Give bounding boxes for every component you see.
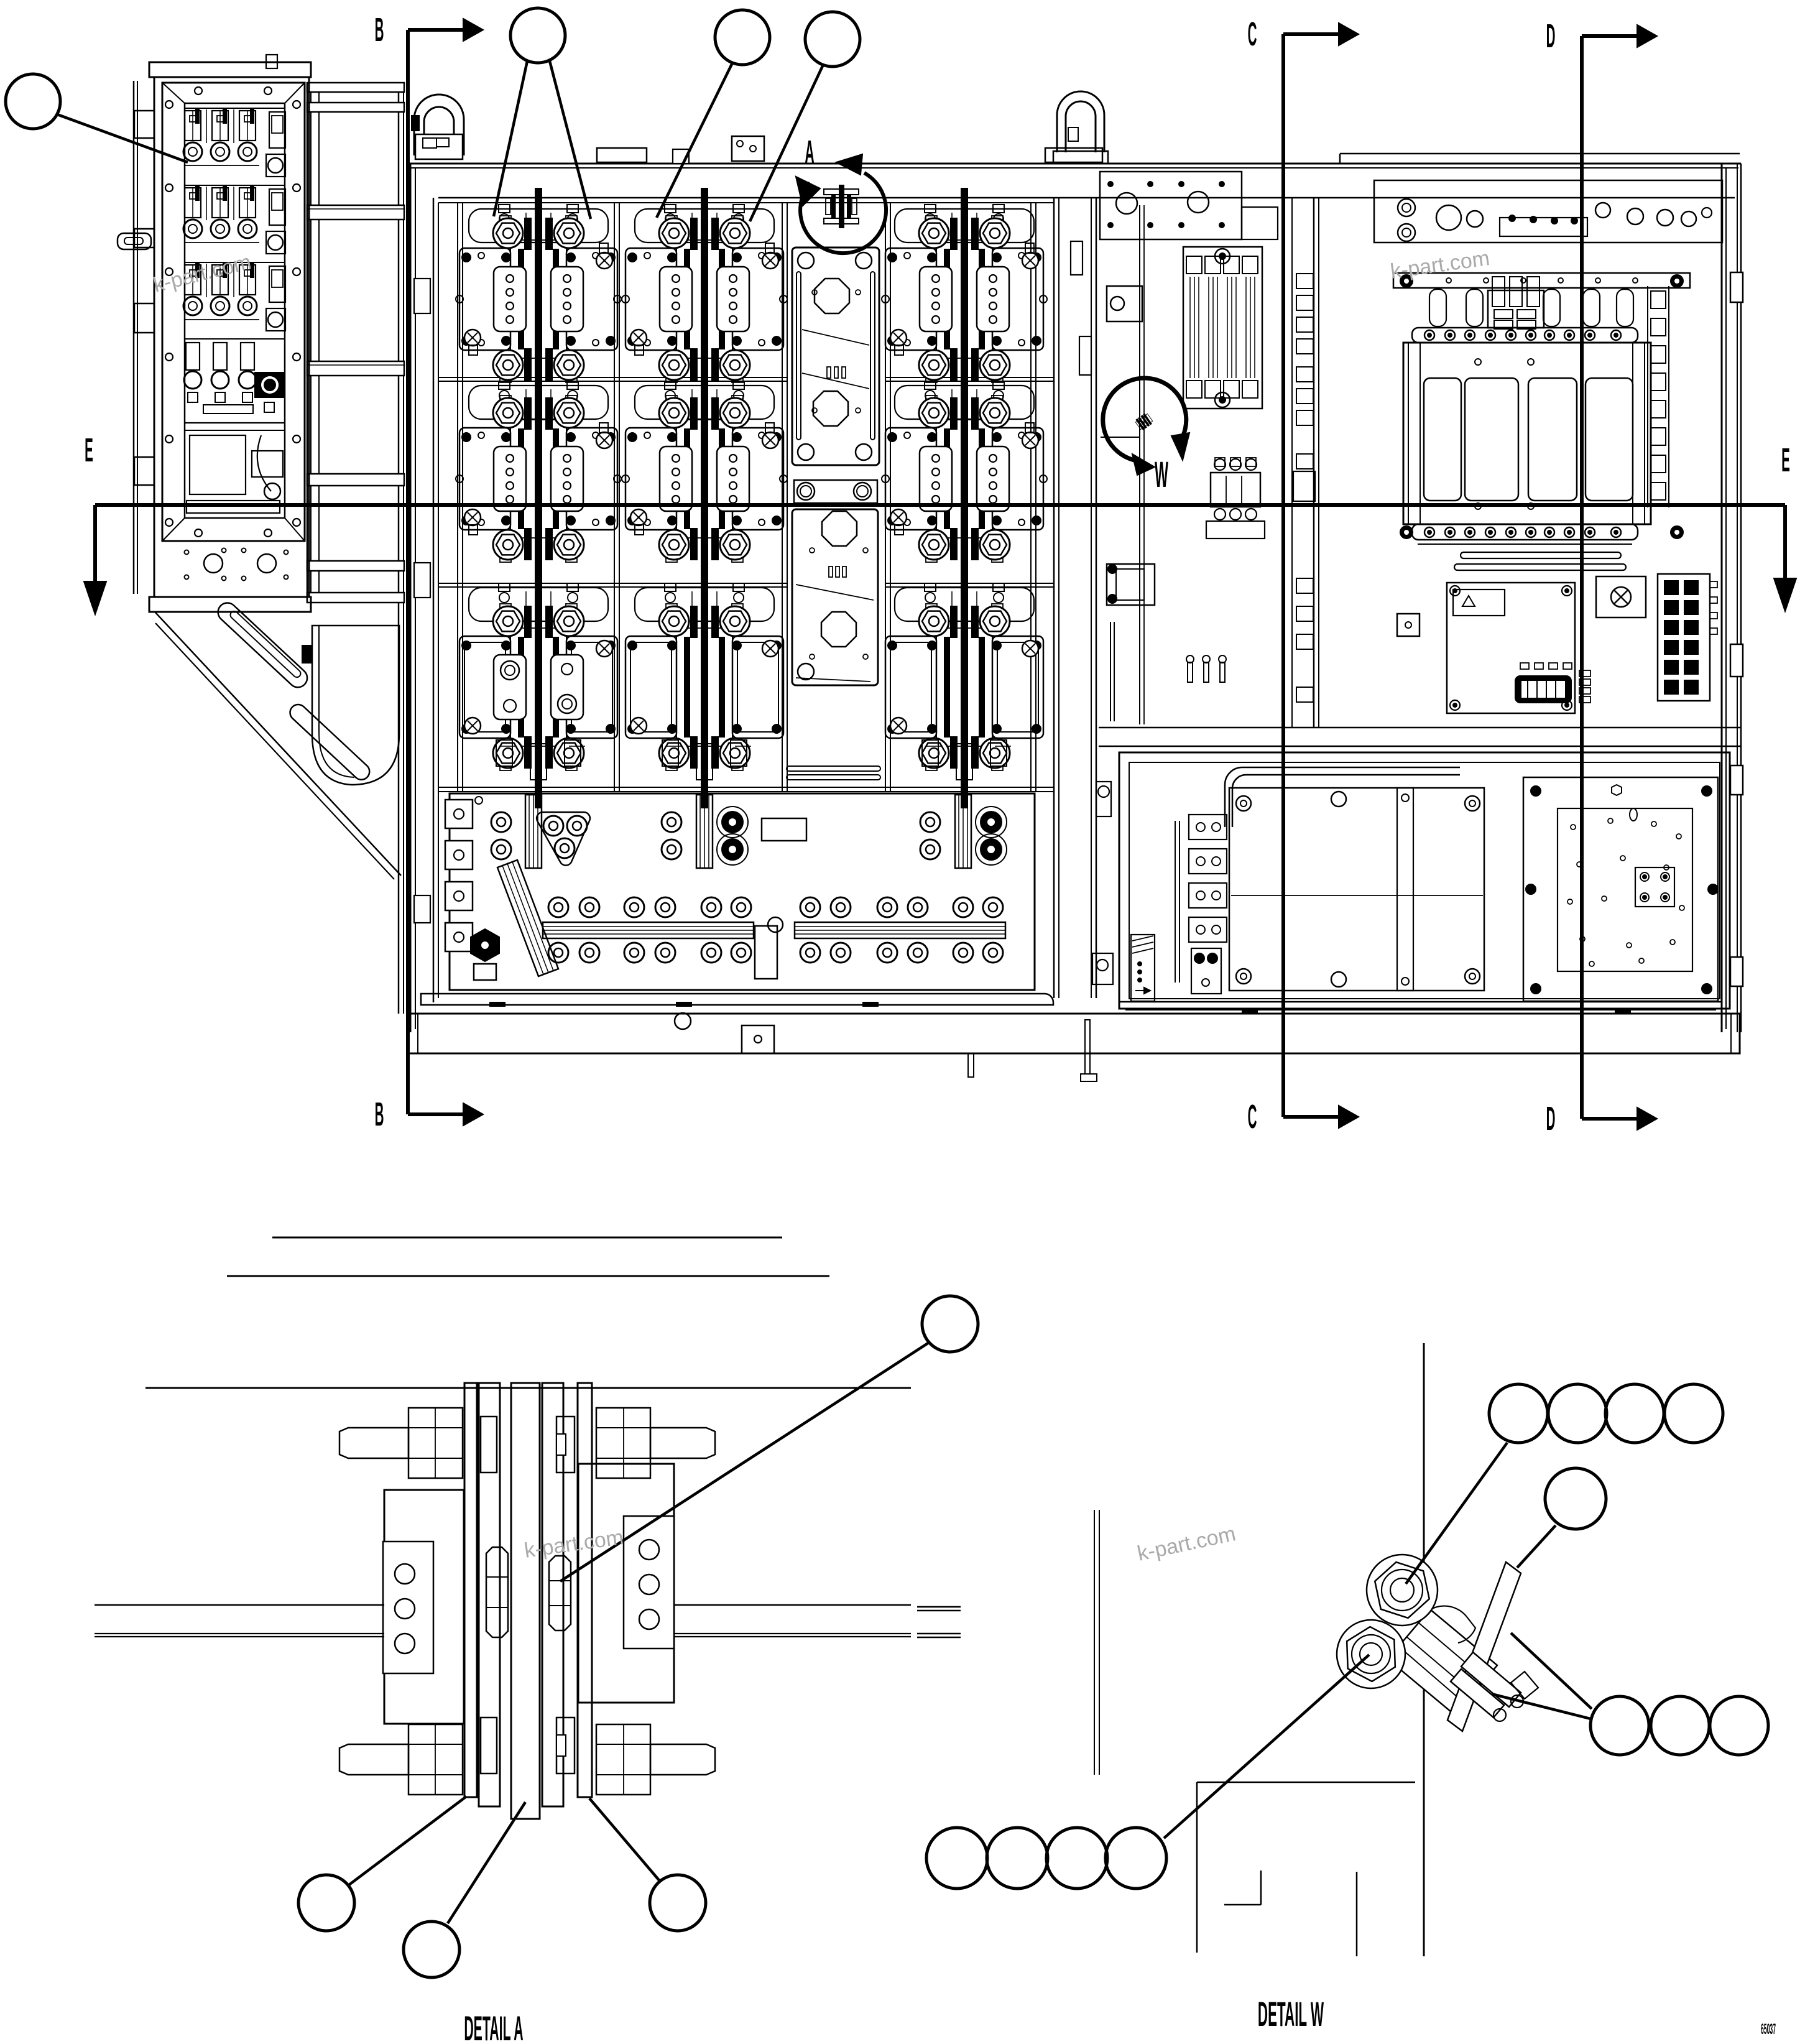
svg-text:A: A bbox=[805, 133, 815, 170]
svg-text:E: E bbox=[85, 431, 93, 469]
svg-text:C: C bbox=[1248, 1098, 1257, 1135]
svg-text:W: W bbox=[1155, 455, 1168, 495]
svg-text:D: D bbox=[1546, 1099, 1556, 1137]
svg-text:B: B bbox=[375, 1095, 384, 1133]
svg-text:k-part.com: k-part.com bbox=[1135, 1522, 1238, 1566]
svg-text:k-part.com: k-part.com bbox=[1389, 246, 1491, 284]
svg-text:DETAIL A: DETAIL A bbox=[464, 2009, 523, 2044]
svg-text:DETAIL W: DETAIL W bbox=[1258, 1995, 1324, 2034]
svg-text:k-part.com: k-part.com bbox=[523, 1525, 625, 1563]
svg-text:C: C bbox=[1248, 15, 1257, 53]
svg-text:B: B bbox=[375, 11, 384, 49]
svg-text:E: E bbox=[1781, 441, 1790, 479]
svg-text:k-part.com: k-part.com bbox=[151, 250, 254, 297]
svg-text:D: D bbox=[1546, 17, 1556, 55]
svg-text:65037: 65037 bbox=[1761, 2021, 1776, 2038]
